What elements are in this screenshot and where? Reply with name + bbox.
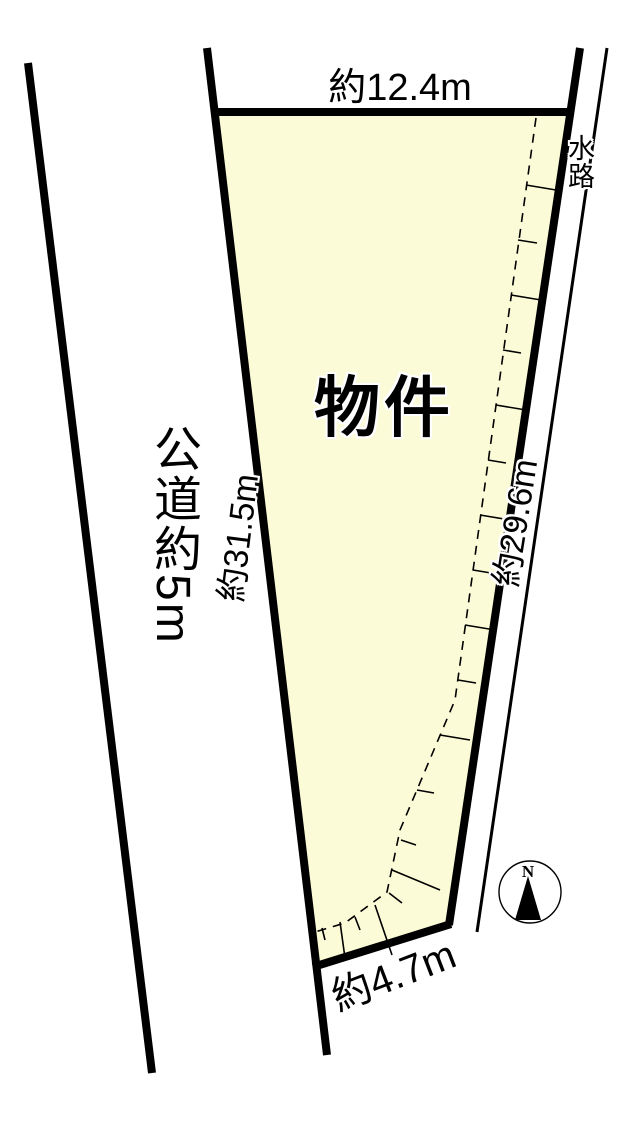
dimension-top: 約12.4m — [328, 69, 472, 109]
compass-needle — [515, 876, 541, 920]
road-left-boundary-line — [28, 63, 152, 1073]
land-plot-diagram: 約12.4m 約31.5m 約29.6m 約4.7m 物件 公道約5m 水路 N — [0, 0, 640, 1121]
road-label: 公道約5m — [147, 424, 197, 645]
survey-drawing — [0, 0, 640, 1121]
compass-north-label: N — [522, 862, 534, 882]
property-label: 物件 — [314, 374, 454, 443]
waterway-label: 水路 — [565, 134, 593, 190]
